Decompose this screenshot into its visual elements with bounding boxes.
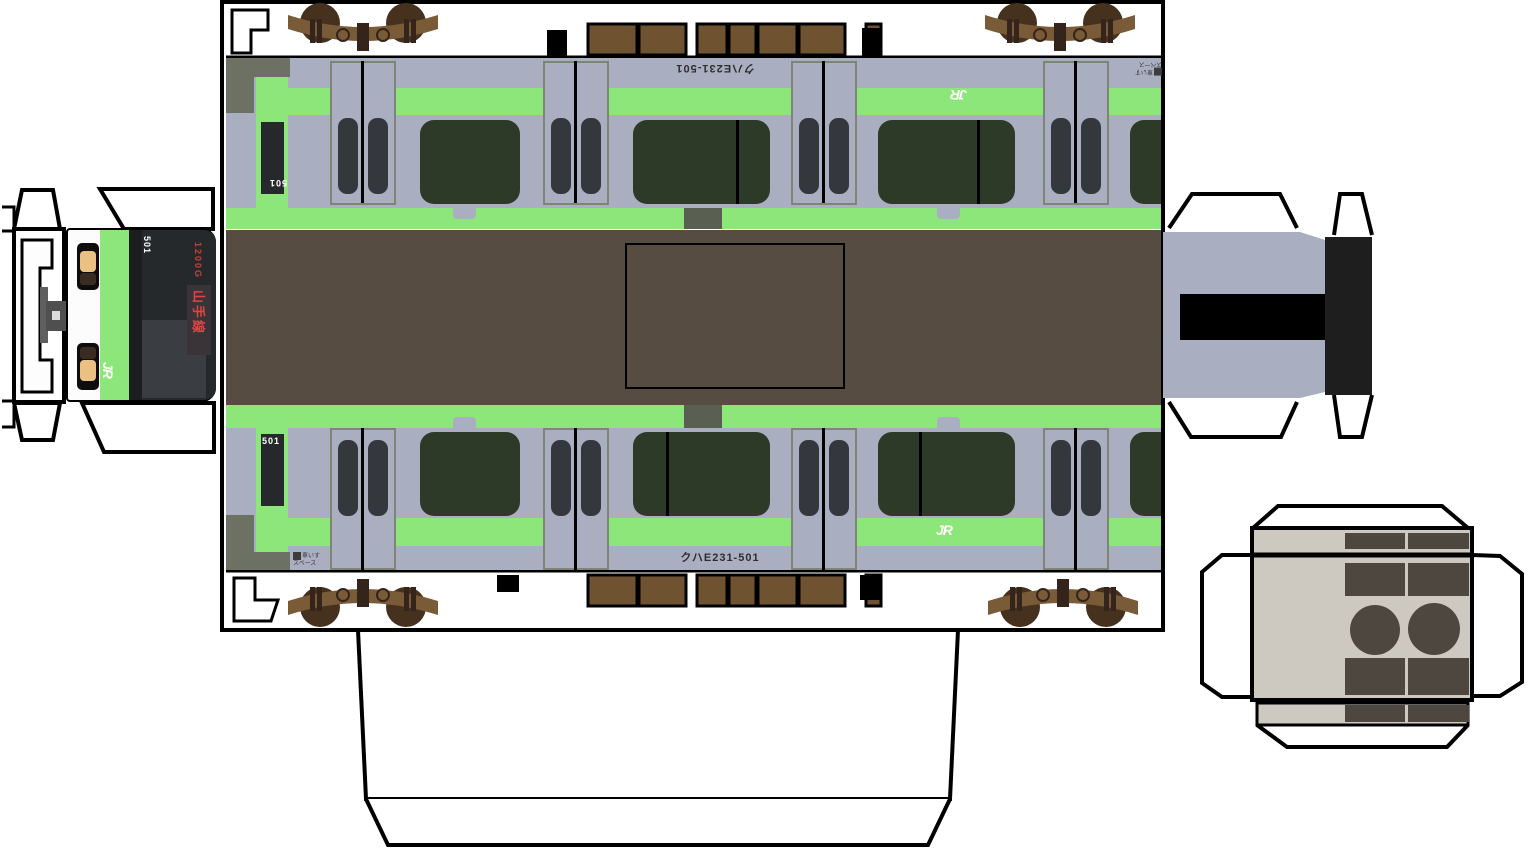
end-panel [1325, 237, 1372, 395]
jr-logo: JR [933, 87, 967, 103]
bogie-icon [985, 3, 1135, 51]
papercraft-sheet: 501 クハE231-501 JR 車いすスペース 501 クハE231-501… [0, 0, 1528, 852]
front-number-label: 501 [142, 236, 152, 262]
window [1130, 120, 1161, 204]
cab-number-label: 501 [259, 178, 287, 188]
roof-tab [453, 417, 476, 428]
roof-ac-cutline [625, 243, 845, 389]
underfloor-equipment-piece [1202, 506, 1522, 747]
door [791, 61, 857, 205]
front-skirt-piece [14, 229, 66, 402]
roof-part-top [862, 28, 882, 56]
roof-vent-tab [684, 405, 722, 428]
roof-tab [937, 208, 960, 219]
door [1043, 428, 1109, 570]
green-stripe-bottom [288, 518, 1161, 546]
cab-end-block [250, 58, 290, 77]
door [330, 61, 396, 205]
window [420, 120, 520, 204]
wheelchair-icon [1154, 68, 1162, 76]
corner-notch-bottom [234, 578, 278, 621]
cab-skirt [250, 552, 290, 570]
corner-notch-top [232, 10, 268, 53]
jr-logo: JR [100, 362, 116, 392]
bogie-icon [288, 3, 438, 51]
end-coupler-bar [1180, 294, 1325, 340]
roof-vent-tab [684, 208, 722, 229]
window [420, 432, 520, 516]
roof-tab [453, 208, 476, 219]
bogie-icon [988, 579, 1138, 627]
bottom-glue-flap [358, 630, 958, 845]
green-stripe-top [288, 88, 1161, 115]
car-number-label-bottom: クハE231-501 [655, 549, 785, 565]
window [633, 432, 770, 516]
door [543, 61, 609, 205]
front-black-band [129, 230, 142, 400]
roof-part-bottom [497, 575, 519, 592]
car-number-label-top: クハE231-501 [650, 61, 780, 77]
bogie-icon [288, 579, 438, 627]
window [878, 432, 1015, 516]
wheelchair-sticker: 車いすスペース [293, 552, 337, 568]
door [330, 428, 396, 570]
door [543, 428, 609, 570]
door [1043, 61, 1109, 205]
window [1130, 432, 1161, 516]
cab-number-label: 501 [262, 436, 290, 446]
rear-end-assembly [1163, 194, 1372, 437]
headlight-icon [77, 243, 99, 290]
window [878, 120, 1015, 204]
wheelchair-sticker: 車いすスペース [1118, 60, 1162, 76]
roof-vents-bottom [588, 575, 881, 606]
roof-part-bottom [860, 575, 882, 600]
jr-logo: JR [936, 522, 970, 538]
roof-vents-top [588, 24, 881, 55]
destination-sign: 山手線 [190, 290, 209, 352]
wheelchair-icon [293, 552, 301, 560]
window [633, 120, 770, 204]
roof-part-top [547, 30, 567, 56]
roof-tab [937, 417, 960, 428]
headlight-icon [77, 343, 99, 390]
door [791, 428, 857, 570]
